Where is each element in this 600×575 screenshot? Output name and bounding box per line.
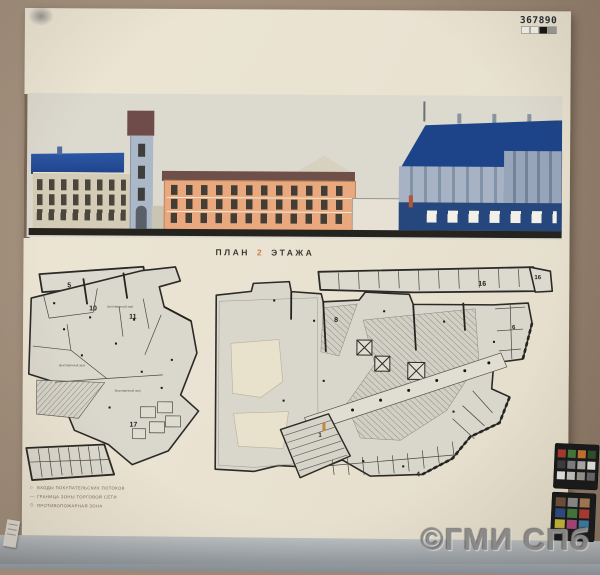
roof-vent — [492, 114, 496, 124]
window-row — [171, 213, 349, 224]
title-word-etazha: ЭТАЖА — [271, 248, 314, 258]
room-number: 17 — [129, 422, 137, 429]
legend-item: — ГРАНИЦА ЗОНЫ ТОРГОВОЙ СЕТИ — [30, 494, 125, 500]
floor-plan-drawing: 5 10 11 17 (выставочный зал) (выставочны… — [22, 258, 568, 501]
grayscale-chip — [548, 27, 556, 34]
plan-legend: ○ ВХОДЫ ПОКУПАТЕЛЬСКИХ ПОТОКОВ — ГРАНИЦА… — [30, 485, 125, 512]
grayscale-chip — [521, 27, 529, 34]
title-floor-number: 2 — [257, 247, 264, 257]
tower-arch — [136, 206, 147, 229]
tiny-annotation: (выставочный зал) — [59, 363, 85, 367]
legend-text: ПРОТИВОПОЖАРНАЯ ЗОНА — [37, 503, 103, 508]
low-pavilion — [352, 198, 403, 232]
legend-marker-icon: — — [30, 494, 37, 499]
tower — [130, 136, 154, 229]
storefront-band — [399, 202, 562, 231]
drawing-sheet: 367890 — [22, 8, 571, 541]
corner-stain — [28, 6, 54, 26]
window-row — [37, 179, 126, 191]
grayscale-chip — [539, 27, 547, 34]
pediment — [295, 156, 353, 173]
plan-title: ПЛАН2ЭТАЖА — [215, 247, 314, 258]
museum-watermark: ©ГМИ СПб — [421, 522, 590, 558]
grayscale-strip — [521, 26, 561, 35]
stair-marker — [322, 423, 325, 431]
right-plan-top-strip — [318, 266, 537, 293]
tower-cap — [127, 111, 154, 136]
legend-marker-icon: ○ — [30, 485, 37, 490]
left-building-roof — [31, 153, 124, 174]
legend-text: ВХОДЫ ПОКУПАТЕЛЬСКИХ ПОТОКОВ — [37, 485, 125, 491]
legend-item: ○ ВХОДЫ ПОКУПАТЕЛЬСКИХ ПОТОКОВ — [30, 485, 125, 491]
room-number: 5 — [67, 282, 71, 289]
left-plan: 5 10 11 17 (выставочный зал) (выставочны… — [26, 266, 199, 481]
tiny-annotation: (выставочный зал) — [107, 305, 133, 309]
room-number: 4 — [416, 471, 420, 478]
left-building-facade — [33, 172, 130, 230]
tiny-annotation: (выставочный зал) — [115, 389, 141, 393]
room-number: 16 — [478, 281, 486, 288]
tower-window — [138, 188, 145, 201]
right-plan: 16 16 8 6 1 4 — [215, 265, 552, 479]
storefront-signs — [427, 210, 557, 223]
roof-ornament — [57, 147, 62, 155]
roof-vent — [457, 114, 461, 124]
left-plan-outline — [28, 266, 199, 465]
orange-building-facade — [164, 180, 356, 232]
window-row — [171, 185, 349, 196]
catalog-number: 367890 — [520, 15, 580, 26]
window-row — [37, 209, 126, 221]
grayscale-chip — [530, 27, 538, 34]
room-number: 16 — [534, 275, 541, 281]
tower-window — [138, 144, 145, 157]
window-row — [171, 199, 349, 210]
antenna — [423, 101, 425, 121]
legend-item: ◇ ПРОТИВОПОЖАРНАЯ ЗОНА — [30, 502, 125, 509]
room-number: 11 — [129, 314, 137, 321]
window-row — [37, 194, 126, 206]
orange-detail — [409, 195, 413, 207]
title-word-plan: ПЛАН — [215, 247, 249, 257]
room-number: 10 — [89, 305, 97, 312]
legend-text: ГРАНИЦА ЗОНЫ ТОРГОВОЙ СЕТИ — [37, 494, 117, 499]
legend-marker-icon: ◇ — [30, 502, 37, 508]
tower-window — [138, 166, 145, 179]
room-number: 8 — [334, 317, 338, 324]
elevation-drawing — [27, 93, 563, 240]
cardboard-backdrop: 367890 — [0, 0, 600, 564]
